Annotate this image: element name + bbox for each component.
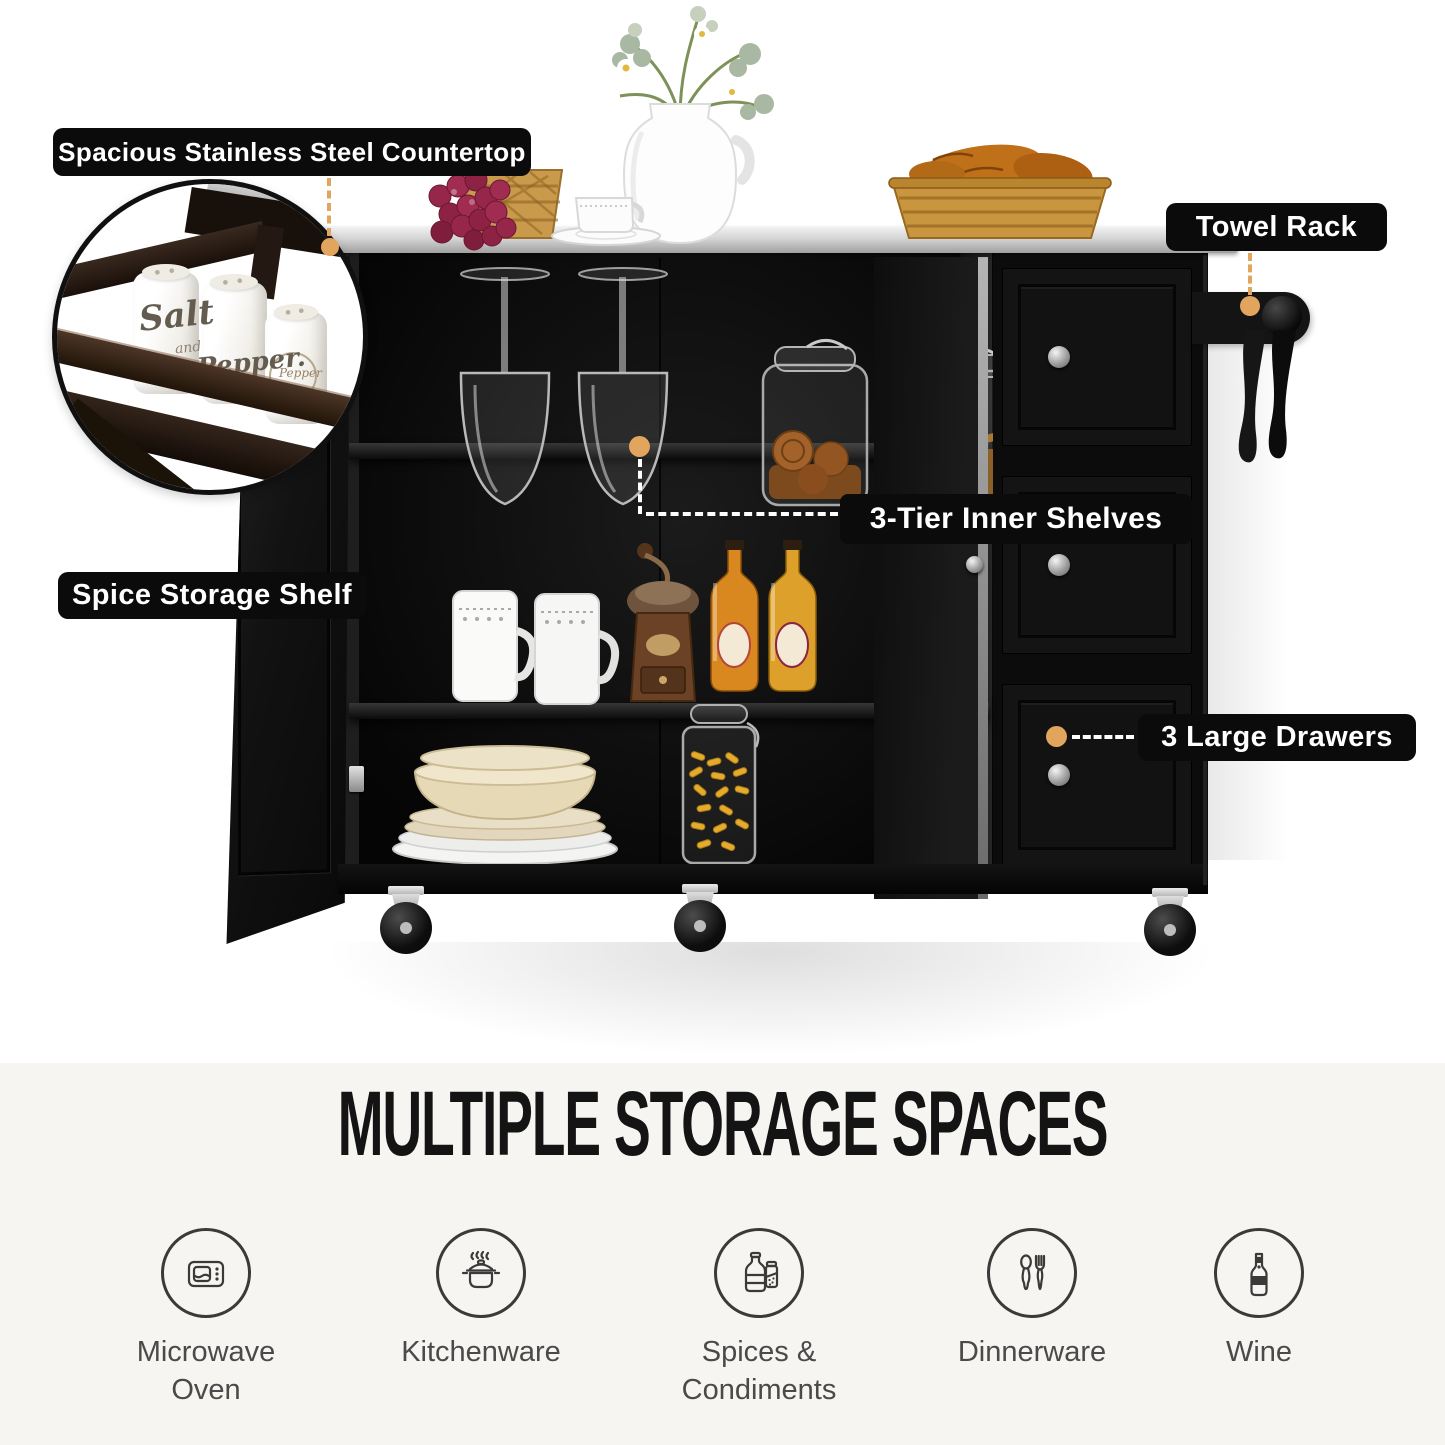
feature-kitchenware: Kitchenware (351, 1228, 611, 1372)
callout-inner-shelves: 3-Tier Inner Shelves (840, 494, 1192, 544)
feature-circle (987, 1228, 1077, 1318)
leader-line-towel-rack (1248, 253, 1252, 295)
callout-towel-rack: Towel Rack (1166, 203, 1387, 251)
door-knob (966, 556, 983, 573)
drawer-1 (1002, 268, 1192, 446)
cutlery-icon (1008, 1249, 1056, 1297)
feature-circle (436, 1228, 526, 1318)
drink-bottles (711, 540, 816, 691)
caster-wheel (1138, 888, 1202, 958)
grapes (429, 169, 516, 250)
white-mugs (453, 591, 615, 704)
drawer-knob (1048, 764, 1070, 786)
caster-wheel (374, 886, 438, 956)
microwave-icon (182, 1249, 230, 1297)
feature-spices-condiments: Spices & Condiments (629, 1228, 889, 1409)
callout-dot-towel-rack (1240, 296, 1260, 316)
feature-circle (714, 1228, 804, 1318)
hinge-icon (349, 766, 364, 792)
inset-salt-text: Salt (137, 292, 216, 340)
feature-label: Wine (1168, 1334, 1350, 1372)
coffee-grinder (627, 543, 699, 701)
pasta-jar (683, 705, 758, 863)
feature-wine: Wine (1129, 1228, 1389, 1372)
section-title: MULTIPLE STORAGE SPACES (338, 1076, 1108, 1173)
feature-dinnerware: Dinnerware (902, 1228, 1162, 1372)
drawer-knob (1048, 554, 1070, 576)
drawer-knob (1048, 346, 1070, 368)
cart-side-edge (1203, 255, 1207, 885)
product-infographic: Salt and Pepper. Pepper Spacious Stainle… (0, 0, 1445, 1445)
leader-line-inner-shelves-h (646, 512, 838, 516)
spice-shelf-inset: Salt and Pepper. Pepper (52, 179, 368, 495)
callout-dot-countertop (321, 238, 339, 256)
bread-basket (885, 140, 1115, 244)
feature-label: Microwave Oven (115, 1334, 297, 1409)
feature-label: Spices & Condiments (668, 1334, 850, 1409)
feature-microwave-oven: Microwave Oven (76, 1228, 336, 1409)
feature-label: Kitchenware (390, 1334, 572, 1372)
towel (1216, 330, 1326, 480)
feature-circle (161, 1228, 251, 1318)
cart-base (338, 864, 1208, 894)
feature-label: Dinnerware (941, 1334, 1123, 1372)
feature-circle (1214, 1228, 1304, 1318)
callout-dot-inner-shelves (629, 436, 650, 457)
callout-spice-shelf: Spice Storage Shelf (58, 572, 366, 619)
leader-line-countertop (327, 178, 331, 236)
pot-icon (457, 1249, 505, 1297)
callout-dot-drawers (1046, 726, 1067, 747)
callout-countertop: Spacious Stainless Steel Countertop (53, 128, 531, 176)
leader-line-drawers (1072, 735, 1134, 739)
caster-wheel (668, 884, 732, 954)
leader-line-inner-shelves-v (638, 459, 642, 514)
drawer-3 (1002, 684, 1192, 866)
cabinet-door-right-open (874, 257, 988, 899)
spice-bottles-icon (735, 1249, 783, 1297)
floor-shadow (320, 942, 1220, 1057)
section-title-wrap: MULTIPLE STORAGE SPACES (0, 1076, 1445, 1173)
plate-stack (393, 746, 617, 864)
callout-drawers: 3 Large Drawers (1138, 714, 1416, 761)
glass-jar-1 (763, 340, 867, 505)
wine-bottle-icon (1235, 1249, 1283, 1297)
inset-pepper-small-text: Pepper (279, 366, 322, 380)
